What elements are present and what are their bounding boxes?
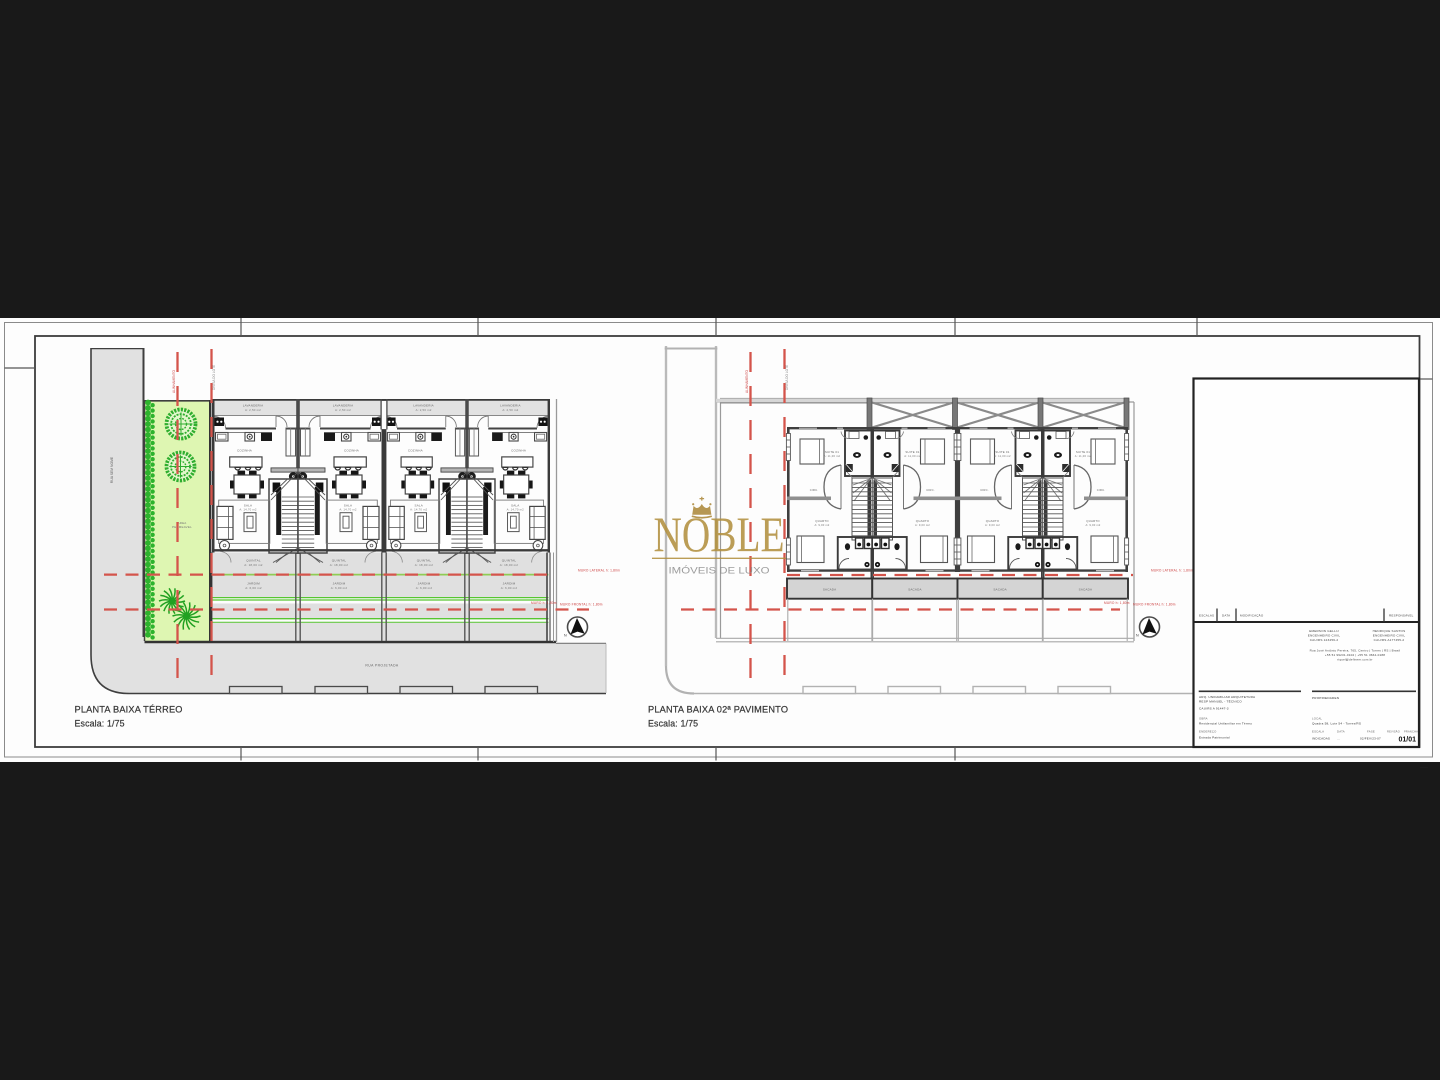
svg-text:COZINHA: COZINHA: [237, 449, 252, 453]
svg-text:COZINHA: COZINHA: [511, 449, 526, 453]
svg-text:MURO FRONTAL h: 1,80m: MURO FRONTAL h: 1,80m: [1133, 603, 1176, 607]
svg-text:QUINTAL: QUINTAL: [332, 559, 347, 563]
svg-text:Estrada Patrimonial: Estrada Patrimonial: [1199, 736, 1230, 740]
svg-text:RUA PROJETADA: RUA PROJETADA: [365, 664, 399, 668]
svg-text:A: 11,00 m2: A: 11,00 m2: [824, 454, 841, 458]
svg-text:A: 2,50 m2: A: 2,50 m2: [416, 408, 432, 412]
svg-text:........: ........: [1420, 765, 1428, 769]
svg-text:A: 14,70 m2: A: 14,70 m2: [339, 507, 357, 511]
svg-text:HENRIQUE SANTOS: HENRIQUE SANTOS: [1373, 629, 1406, 633]
svg-text:SUITE 01: SUITE 01: [825, 450, 839, 454]
svg-text:A: 11,00 m2: A: 11,00 m2: [994, 454, 1011, 458]
svg-text:PRANCHA: PRANCHA: [1404, 730, 1418, 734]
svg-text:ESCALAS: ESCALAS: [1199, 614, 1214, 618]
svg-text:COZINHA: COZINHA: [408, 449, 423, 453]
svg-text:CAU/RS 123456-2: CAU/RS 123456-2: [1310, 638, 1339, 642]
svg-text:QUARTO: QUARTO: [986, 519, 1000, 523]
svg-text:A: 6,00 m2: A: 6,00 m2: [501, 586, 518, 590]
svg-text:SACADA: SACADA: [1079, 588, 1093, 592]
svg-text:SUITE 01: SUITE 01: [995, 450, 1009, 454]
svg-text:QUARTO: QUARTO: [815, 519, 829, 523]
svg-text:A: 2,50 m2: A: 2,50 m2: [335, 408, 351, 412]
svg-text:02/FEV/23-07: 02/FEV/23-07: [1360, 737, 1381, 741]
svg-text:QUARTO: QUARTO: [916, 519, 930, 523]
svg-text:MURO FRONTAL h: 1,80m: MURO FRONTAL h: 1,80m: [560, 603, 603, 607]
svg-text:SACADA: SACADA: [823, 588, 837, 592]
svg-text:A: 14,70 m2: A: 14,70 m2: [507, 507, 525, 511]
svg-text:IMÓVEIS DE LUXO: IMÓVEIS DE LUXO: [669, 566, 770, 576]
svg-text:A: 6,00 m2: A: 6,00 m2: [416, 586, 433, 590]
svg-text:PROPRIEDADEN: PROPRIEDADEN: [1312, 696, 1339, 700]
svg-text:A: 2,50 m2: A: 2,50 m2: [245, 408, 261, 412]
svg-text:A: 11,00 m2: A: 11,00 m2: [1075, 454, 1092, 458]
svg-text:JARDIM: JARDIM: [503, 582, 516, 586]
svg-text:JARDIM: JARDIM: [333, 582, 346, 586]
svg-text:LAVANDERIA: LAVANDERIA: [243, 404, 264, 408]
svg-text:QUINTAL: QUINTAL: [417, 559, 432, 563]
svg-text:RUA SEM NOME: RUA SEM NOME: [110, 456, 114, 483]
svg-text:QUINTAL: QUINTAL: [502, 559, 517, 563]
svg-text:LAVANDERIA: LAVANDERIA: [500, 404, 521, 408]
svg-text:ALINHAMENTO: ALINHAMENTO: [172, 370, 176, 393]
svg-text:PERMEAVEL: PERMEAVEL: [172, 525, 192, 529]
svg-text:DATA: DATA: [1337, 730, 1345, 734]
svg-text:PLANTA BAIXA 02ª PAVIMENTO: PLANTA BAIXA 02ª PAVIMENTO: [648, 705, 788, 715]
svg-text:A: 18,00 m2: A: 18,00 m2: [415, 563, 434, 567]
svg-text:A: 6,00 m2: A: 6,00 m2: [245, 586, 262, 590]
svg-text:Residencial Unifamiliar em Tér: Residencial Unifamiliar em Térreo: [1199, 722, 1252, 726]
svg-text:MODIFICAÇÃO: MODIFICAÇÃO: [1240, 613, 1264, 618]
svg-text:A: 14,70 m2: A: 14,70 m2: [410, 507, 428, 511]
svg-text:DIVISA DO LOTE: DIVISA DO LOTE: [785, 365, 789, 390]
svg-text:A: 9,00 m2: A: 9,00 m2: [915, 523, 930, 527]
svg-text:MURO h: 1,80m: MURO h: 1,80m: [531, 601, 557, 605]
svg-text:QUINTAL: QUINTAL: [246, 559, 261, 563]
svg-text:Escala: 1/75: Escala: 1/75: [75, 719, 125, 729]
svg-text:OBRA: OBRA: [1199, 717, 1208, 721]
svg-text:SUITE 01: SUITE 01: [905, 450, 919, 454]
svg-text:Escala: 1/75: Escala: 1/75: [648, 719, 698, 729]
svg-text:CIRC.: CIRC.: [810, 488, 819, 492]
svg-text:SUITE 01: SUITE 01: [1076, 450, 1090, 454]
svg-text:...: ...: [1337, 737, 1340, 741]
svg-text:N: N: [564, 634, 567, 638]
svg-text:+55 51 99231-0102 | +55 51 366: +55 51 99231-0102 | +55 51 3664-0188: [1325, 653, 1385, 657]
svg-text:A: 9,00 m2: A: 9,00 m2: [985, 523, 1000, 527]
svg-text:DATA: DATA: [1222, 614, 1230, 618]
svg-text:PLANTA BAIXA TÉRREO: PLANTA BAIXA TÉRREO: [75, 705, 183, 715]
svg-text:INDICADAS: INDICADAS: [1312, 737, 1330, 741]
svg-text:QUARTO: QUARTO: [1086, 519, 1100, 523]
svg-text:A: 18,00 m2: A: 18,00 m2: [500, 563, 519, 567]
svg-text:CAU/RS A177455-2: CAU/RS A177455-2: [1374, 638, 1405, 642]
svg-text:A: 9,00 m2: A: 9,00 m2: [815, 523, 830, 527]
svg-text:JARDIM: JARDIM: [247, 582, 260, 586]
svg-text:A: 2,50 m2: A: 2,50 m2: [502, 408, 518, 412]
svg-text:RESPONSÁVEL: RESPONSÁVEL: [1389, 614, 1414, 618]
svg-text:N: N: [1136, 634, 1139, 638]
svg-text:ALINHAMENTO: ALINHAMENTO: [745, 370, 749, 393]
svg-text:EMERSON GELLIJ: EMERSON GELLIJ: [1309, 629, 1339, 633]
svg-text:A: 14,70 m2: A: 14,70 m2: [239, 507, 257, 511]
svg-text:SACADA: SACADA: [908, 588, 922, 592]
svg-text:ESCALA: ESCALA: [1312, 730, 1324, 734]
svg-text:01/01: 01/01: [1398, 737, 1416, 744]
svg-text:ENDEREÇO: ENDEREÇO: [1199, 730, 1217, 734]
svg-text:DIVISA DO LOTE: DIVISA DO LOTE: [212, 365, 216, 390]
svg-text:Rua José Antônio Pereira, 765,: Rua José Antônio Pereira, 765, Centro | …: [1310, 649, 1401, 653]
svg-text:CIRC.: CIRC.: [980, 488, 989, 492]
svg-text:A: 11,00 m2: A: 11,00 m2: [904, 454, 921, 458]
svg-text:FASE: FASE: [1367, 730, 1375, 734]
svg-text:ARQ. UNIFAMILIAR ARQUITETURA: ARQ. UNIFAMILIAR ARQUITETURA: [1199, 695, 1256, 699]
svg-text:LAVANDERIA: LAVANDERIA: [413, 404, 434, 408]
svg-text:JARDIM: JARDIM: [418, 582, 431, 586]
svg-text:A: 9,00 m2: A: 9,00 m2: [1086, 523, 1101, 527]
svg-text:riquel@defineer.com.br: riquel@defineer.com.br: [1337, 658, 1372, 662]
svg-text:A: 18,00 m2: A: 18,00 m2: [244, 563, 263, 567]
svg-text:A: 18,00 m2: A: 18,00 m2: [330, 563, 349, 567]
svg-text:COZINHA: COZINHA: [344, 449, 359, 453]
svg-text:CIRC.: CIRC.: [926, 488, 935, 492]
svg-text:LAVANDERIA: LAVANDERIA: [333, 404, 354, 408]
svg-text:ENGENHEIRO CIVIL: ENGENHEIRO CIVIL: [1308, 634, 1341, 638]
svg-text:SACADA: SACADA: [993, 588, 1007, 592]
svg-text:MURO h: 1,80m: MURO h: 1,80m: [1104, 601, 1130, 605]
svg-text:A: 6,00 m2: A: 6,00 m2: [331, 586, 348, 590]
svg-text:CAU/RS A 91447-3: CAU/RS A 91447-3: [1199, 707, 1229, 711]
svg-text:Quadra 58, Lote 54 - Torres/RS: Quadra 58, Lote 54 - Torres/RS: [1312, 722, 1361, 726]
svg-text:LOCAL: LOCAL: [1312, 717, 1322, 721]
svg-text:ENGENHEIRO CIVIL: ENGENHEIRO CIVIL: [1373, 634, 1406, 638]
svg-text:RESP MANUEL - TÉCNICO: RESP MANUEL - TÉCNICO: [1199, 699, 1242, 704]
svg-text:MURO LATERAL h: 1,80m: MURO LATERAL h: 1,80m: [1151, 569, 1193, 573]
svg-text:CIRC.: CIRC.: [1097, 488, 1106, 492]
svg-text:NOBLE: NOBLE: [654, 508, 785, 563]
svg-text:MURO LATERAL h: 1,80m: MURO LATERAL h: 1,80m: [578, 569, 620, 573]
